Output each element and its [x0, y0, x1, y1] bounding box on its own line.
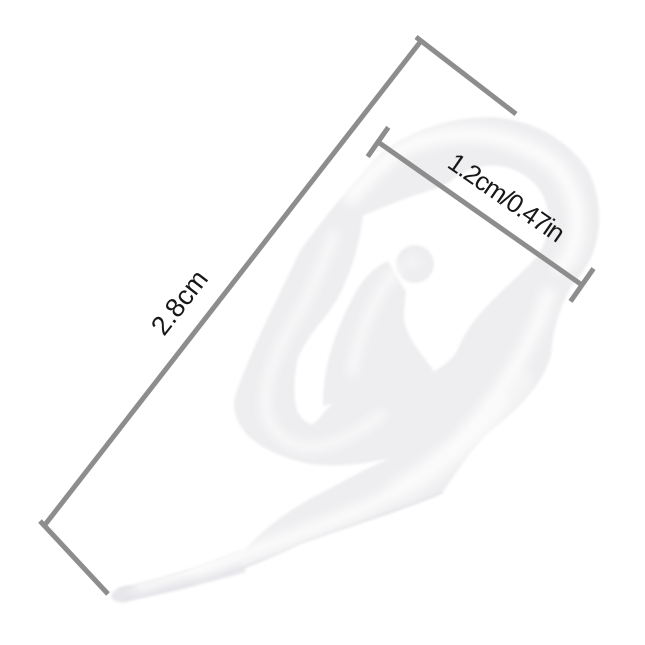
svg-text:2.8cm: 2.8cm — [145, 264, 214, 340]
